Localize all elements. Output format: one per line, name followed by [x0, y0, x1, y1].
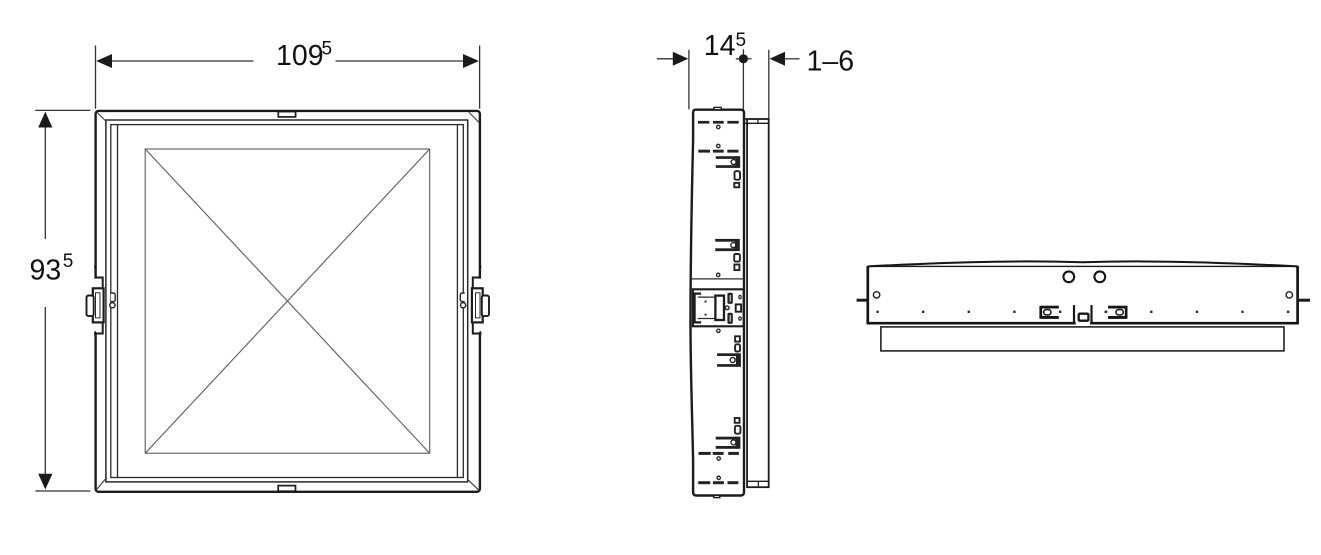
svg-text:5: 5 [322, 39, 333, 60]
svg-text:1–6: 1–6 [807, 45, 855, 77]
svg-text:5: 5 [736, 30, 747, 51]
svg-text:93: 93 [30, 255, 62, 287]
svg-text:14: 14 [704, 30, 736, 62]
svg-text:109: 109 [276, 40, 324, 72]
svg-text:5: 5 [63, 251, 74, 272]
